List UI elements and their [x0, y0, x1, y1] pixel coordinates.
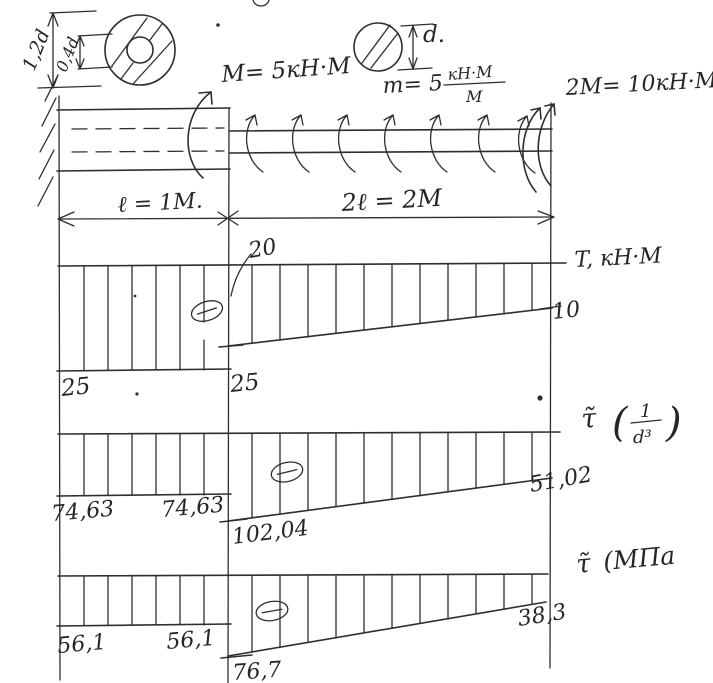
tau-symbol: τ̃ — [580, 403, 598, 435]
hatching-lines — [252, 264, 532, 343]
length-left-label: ℓ = 1М. — [117, 189, 203, 218]
solid-diameter-label: d. — [423, 22, 445, 48]
fraction-numerator: 1 — [640, 401, 651, 422]
fraction-denominator: d³ — [633, 427, 652, 448]
minus-sign-icon — [269, 459, 305, 485]
length-dimension-line: ℓ = 1М. 2ℓ = 2М — [58, 184, 554, 226]
leader-line — [231, 254, 251, 296]
tau-rel-left-value: 74,63 — [50, 497, 115, 527]
tau-rel-left2-value: 74,63 — [160, 493, 225, 523]
hatching-lines — [84, 576, 204, 625]
m-fraction-numerator: кН·М — [447, 62, 494, 84]
tau-mpa-left-value: 56,1 — [56, 630, 107, 659]
outer-diameter-label: 1,2d — [18, 26, 54, 74]
tau-mpa-unit: (МПа — [602, 541, 676, 576]
bore-dashed-line — [72, 151, 224, 152]
hatching-lines — [362, 25, 398, 68]
bore-dashed-line — [72, 128, 224, 129]
torque-junction-value: 25 — [228, 369, 261, 398]
torque-left-value: 25 — [59, 373, 92, 402]
torque-diagram: 20 10 25 25 T, кН·М — [57, 234, 663, 402]
hollow-section-view — [105, 15, 175, 85]
wall-hatching — [38, 75, 58, 206]
tau-mpa-diagram-label: τ̃ (МПа — [575, 541, 676, 580]
tau-mpa-junction-value: 76,7 — [232, 658, 283, 683]
tau-symbol: τ̃ — [575, 549, 593, 580]
hatching-lines — [252, 433, 532, 518]
tau-mpa-end-value: 38,3 — [516, 600, 568, 632]
minus-sign-icon — [189, 297, 225, 325]
torsion-sketch-svg: 1,2d 0,4d d. — [0, 0, 713, 683]
m-fraction-denominator: М — [465, 87, 483, 106]
length-right-label: 2ℓ = 2М — [340, 184, 444, 217]
scanned-sketch-page: 1,2d 0,4d d. — [0, 0, 713, 683]
distributed-moment-label: m= 5 кН·М М — [382, 62, 505, 106]
moment-M-label: M= 5кН·М — [220, 53, 353, 88]
inner-diameter-dimension: 0,4d — [52, 34, 112, 74]
stress-mpa-diagram: 56,1 56,1 76,7 38,3 τ̃ (МПа — [56, 541, 676, 683]
torque-peak-value: 20 — [246, 234, 279, 264]
tau-rel-junction-value: 102,04 — [231, 516, 310, 550]
hatching-lines — [84, 266, 204, 370]
solid-section-view: d. — [354, 22, 445, 71]
open-paren: ( — [612, 400, 629, 446]
tau-mpa-left2-value: 56,1 — [165, 626, 216, 655]
shaft-left-section — [57, 108, 230, 171]
moment-arrow-M — [188, 92, 212, 178]
relative-stress-diagram: 74,63 74,63 102,04 51,02 τ̃ ( 1 d³ ) — [50, 400, 681, 550]
moment-2M-label: 2M= 10кН·М. — [564, 68, 713, 101]
close-paren: ) — [665, 400, 682, 446]
torque-end-value: 10 — [551, 297, 581, 325]
tau-rel-diagram-label: τ̃ ( 1 d³ ) — [580, 400, 681, 448]
extension-lines — [59, 96, 551, 683]
hatching-lines — [112, 18, 172, 84]
distributed-moment-arrows — [246, 115, 535, 173]
torque-diagram-label: T, кН·М — [574, 243, 663, 273]
hatching-lines — [84, 434, 204, 495]
m-value: m= 5 — [382, 71, 444, 99]
hatching-lines — [252, 575, 532, 652]
tau-rel-end-value: 51,02 — [528, 462, 594, 498]
shaft-right-section — [230, 129, 552, 153]
minus-sign-icon — [255, 599, 290, 623]
